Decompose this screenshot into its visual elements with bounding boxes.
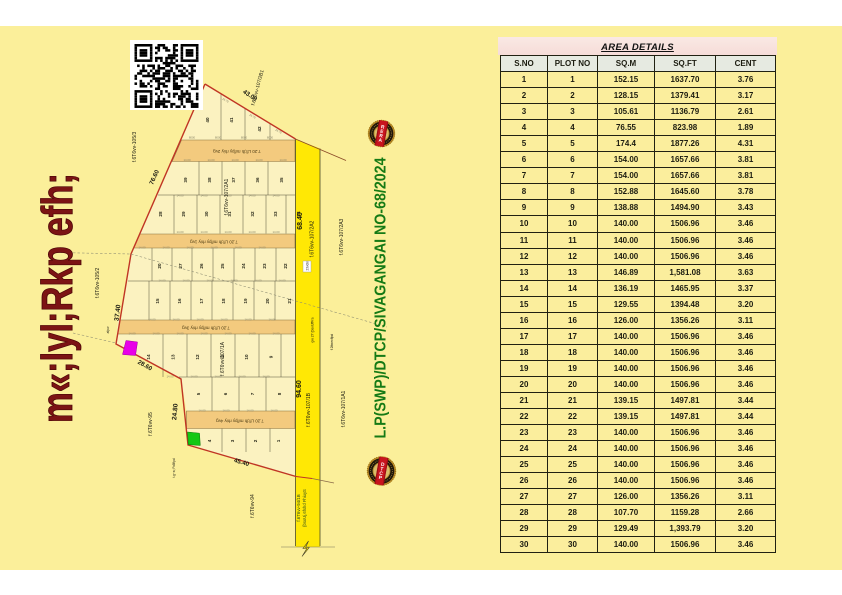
svg-text:14.00: 14.00 — [239, 375, 246, 379]
svg-text:14.00: 14.00 — [256, 158, 263, 162]
svg-text:14.00: 14.00 — [139, 246, 146, 250]
svg-text:16: 16 — [177, 298, 182, 304]
svg-text:10: 10 — [244, 354, 249, 360]
svg-text:14.00: 14.00 — [235, 246, 242, 250]
svg-text:76.60: 76.60 — [148, 168, 161, 186]
svg-text:25: 25 — [220, 263, 225, 269]
svg-text:18: 18 — [221, 298, 226, 304]
svg-text:13: 13 — [171, 354, 176, 360]
svg-text:14.00: 14.00 — [149, 318, 156, 322]
svg-text:4: 4 — [207, 439, 212, 442]
svg-text:14.00: 14.00 — [225, 194, 232, 198]
svg-text:8: 8 — [277, 392, 282, 395]
svg-text:14.00: 14.00 — [201, 230, 208, 234]
svg-text:14.00: 14.00 — [177, 332, 184, 336]
svg-text:14.00: 14.00 — [255, 279, 262, 283]
svg-text:33: 33 — [273, 211, 278, 217]
svg-text:32: 32 — [250, 211, 255, 217]
svg-text:7.20 Lfl;lh m/fpy rhiy 2vg: 7.20 Lfl;lh m/fpy rhiy 2vg — [213, 149, 261, 154]
svg-text:20: 20 — [157, 263, 162, 269]
svg-text:7.20 Lfl;lh m/fpy rhiy 3vg: 7.20 Lfl;lh m/fpy rhiy 3vg — [182, 326, 230, 331]
svg-text:f.6T6vv-105/2: f.6T6vv-105/2 — [95, 267, 101, 298]
svg-text:14.00: 14.00 — [211, 246, 218, 250]
svg-text:14.00: 14.00 — [247, 409, 254, 413]
svg-text:7: 7 — [250, 392, 255, 395]
svg-text:41: 41 — [229, 117, 234, 123]
svg-text:28: 28 — [158, 211, 163, 217]
svg-text:f.6T6vv-94: f.6T6vv-94 — [250, 494, 256, 518]
svg-text:14.00: 14.00 — [199, 409, 206, 413]
svg-text:36: 36 — [255, 177, 260, 183]
svg-text:15: 15 — [155, 298, 160, 304]
svg-text:14.00: 14.00 — [269, 318, 276, 322]
svg-text:14.00: 14.00 — [187, 246, 194, 250]
svg-text:22: 22 — [283, 263, 288, 269]
svg-text:14.00: 14.00 — [223, 409, 230, 413]
svg-text:14.00: 14.00 — [231, 279, 238, 283]
svg-text:8000: 8000 — [267, 136, 274, 140]
svg-text:14.00: 14.00 — [215, 375, 222, 379]
svg-text:6: 6 — [223, 392, 228, 395]
svg-text:14.00: 14.00 — [129, 332, 136, 336]
svg-text:f.6T6vv-107/2A3: f.6T6vv-107/2A3 — [339, 218, 345, 255]
svg-text:14.00: 14.00 — [167, 375, 174, 379]
svg-text:14.00: 14.00 — [249, 332, 256, 336]
svg-text:3: 3 — [230, 439, 235, 442]
svg-text:17: 17 — [199, 298, 204, 304]
svg-text:14: 14 — [146, 354, 151, 360]
svg-text:24: 24 — [241, 263, 246, 269]
svg-text:14.00: 14.00 — [249, 194, 256, 198]
svg-text:40: 40 — [205, 117, 210, 123]
svg-text:14.00: 14.00 — [191, 375, 198, 379]
svg-text:m«;lyl;Rkp efh;: m«;lyl;Rkp efh; — [33, 173, 82, 423]
svg-text:39: 39 — [183, 177, 188, 183]
svg-text:14.00: 14.00 — [177, 230, 184, 234]
svg-text:afpw: afpw — [106, 326, 110, 333]
svg-text:30: 30 — [204, 211, 209, 217]
svg-text:14.00: 14.00 — [263, 375, 270, 379]
svg-text:94.60: 94.60 — [296, 380, 303, 398]
svg-text:14.00: 14.00 — [177, 194, 184, 198]
svg-text:12: 12 — [195, 354, 200, 360]
svg-text:14.00: 14.00 — [249, 230, 256, 234]
svg-text:29: 29 — [181, 211, 186, 217]
svg-text:14.00: 14.00 — [221, 318, 228, 322]
svg-text:23: 23 — [262, 263, 267, 269]
svg-text:24.80: 24.80 — [171, 403, 179, 420]
svg-text:14.00: 14.00 — [159, 279, 166, 283]
svg-text:20: 20 — [265, 298, 270, 304]
svg-text:14.00: 14.00 — [197, 318, 204, 322]
svg-text:14.00: 14.00 — [225, 332, 232, 336]
svg-text:14.00: 14.00 — [280, 158, 287, 162]
svg-text:f.6T6vv-105/3: f.6T6vv-105/3 — [132, 131, 138, 162]
svg-text:{bsoUj,6fshd FhiuyS: {bsoUj,6fshd FhiuyS — [302, 489, 307, 527]
svg-text:14.00: 14.00 — [245, 318, 252, 322]
svg-text:8000: 8000 — [215, 136, 222, 140]
svg-text:14.00: 14.00 — [184, 158, 191, 162]
svg-text:14.00: 14.00 — [273, 332, 280, 336]
svg-text:14.00: 14.00 — [259, 246, 266, 250]
svg-text:f.6T6vv-107/1B: f.6T6vv-107/1B — [306, 392, 312, 427]
svg-text:14.00: 14.00 — [201, 332, 208, 336]
svg-text:14.00: 14.00 — [207, 279, 214, 283]
svg-text:14.00: 14.00 — [208, 158, 215, 162]
svg-text:f.6T6vv-107/2A2: f.6T6vv-107/2A2 — [310, 220, 316, 257]
svg-text:23vdhi: 23vdhi — [306, 261, 310, 271]
svg-text:L.P(SWP)/DTCP/SIVAGANGAI NO-68: L.P(SWP)/DTCP/SIVAGANGAI NO-68/2024 — [373, 157, 390, 438]
svg-text:26: 26 — [199, 263, 204, 269]
svg-text:14.00: 14.00 — [201, 194, 208, 198]
svg-text:1: 1 — [276, 439, 281, 442]
svg-text:7.20 Lfl;lh m/fpy rhiy 1vg: 7.20 Lfl;lh m/fpy rhiy 1vg — [190, 240, 238, 245]
svg-text:14.00: 14.00 — [173, 318, 180, 322]
svg-text:7.20 Lfl;lh m/fpy rhiy 4vg: 7.20 Lfl;lh m/fpy rhiy 4vg — [216, 419, 264, 424]
svg-text:5: 5 — [196, 392, 201, 395]
svg-text:f 2fmevflpd: f 2fmevflpd — [330, 334, 334, 351]
svg-text:9: 9 — [269, 355, 274, 358]
svg-text:f.6T6vv-107/1A: f.6T6vv-107/1A — [220, 341, 226, 376]
svg-text:14.00: 14.00 — [273, 194, 280, 198]
svg-text:2: 2 — [253, 439, 258, 442]
svg-text:37: 37 — [231, 177, 236, 183]
svg-text:f.6T6vv-94/1B: f.6T6vv-94/1B — [296, 494, 301, 521]
svg-text:14.00: 14.00 — [279, 279, 286, 283]
svg-text:14.00: 14.00 — [271, 409, 278, 413]
svg-text:14.00: 14.00 — [232, 158, 239, 162]
svg-text:8000: 8000 — [241, 136, 248, 140]
svg-text:35: 35 — [279, 177, 284, 183]
svg-text:t.g~a; FnBfpd: t.g~a; FnBfpd — [172, 458, 176, 477]
svg-text:14.00: 14.00 — [153, 332, 160, 336]
svg-text:68.40: 68.40 — [297, 212, 304, 230]
svg-text:f.6T6vv-107/1A1: f.6T6vv-107/1A1 — [341, 390, 347, 427]
svg-text:42: 42 — [257, 126, 262, 132]
svg-text:19: 19 — [243, 298, 248, 304]
svg-text:38: 38 — [207, 177, 212, 183]
svg-text:14.00: 14.00 — [163, 246, 170, 250]
svg-text:14.00: 14.00 — [273, 230, 280, 234]
svg-text:f.6T6vv-95: f.6T6vv-95 — [148, 412, 154, 436]
svg-text:8000: 8000 — [189, 136, 196, 140]
svg-text:14.00: 14.00 — [225, 230, 232, 234]
svg-text:14.00: 14.00 — [183, 279, 190, 283]
svg-text:gw 27 {bsoUfFra: gw 27 {bsoUfFra — [311, 317, 315, 342]
